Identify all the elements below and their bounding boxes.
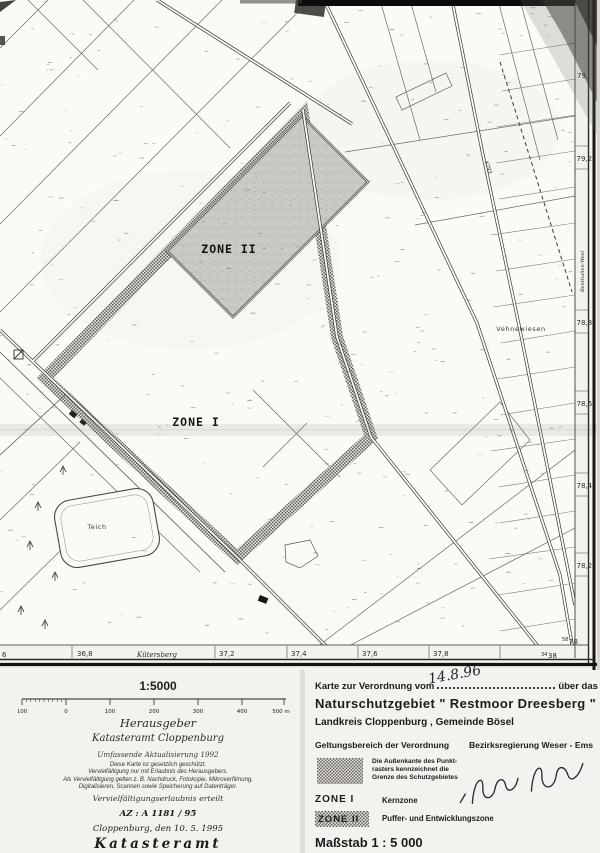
scale-title: 1:5000 [18,679,298,693]
place-date: Cloppenburg, den 10. 5. 1995 [18,824,298,834]
grid-corner-big: 78 [569,638,578,646]
grid-label: 78,6 [577,400,593,408]
signature [452,753,592,822]
grid-label: 78,2 [577,562,593,570]
authority-label: Bezirksregierung Weser - Ems [469,740,593,750]
copyright-line: Als Vervielfältigung gelten z. B. Nachdr… [18,777,298,784]
fold-crease-line [0,429,600,430]
map-legend-panel: 1:5000 100 0 100 200 300 400 500 m Herau… [0,670,600,853]
vertical-fold-crease [300,670,305,853]
protected-area-title: Naturschutzgebiet " Restmoor Dreesberg " [315,696,596,711]
zone1-desc: Kernzone [382,796,418,805]
publisher-heading: Herausgeber [18,716,298,730]
grid-label: 79,2 [577,155,593,163]
grid-corner-big: 38 [548,652,557,660]
decree-suffix: über das [558,681,598,692]
raster-note-line: rasters kennzeichnet die [372,766,458,774]
copyright-block: Diese Karte ist gesetzlich geschützt. Ve… [18,762,298,792]
zone2-key-swatch: ZONE II [315,811,369,827]
grid-label: 78,8 [577,319,593,327]
zone1-key: ZONE I [315,794,354,805]
zone2-map-label: ZONE II [201,242,256,256]
scale-tick-label: 100 [18,709,28,715]
scale-tick-label: 0 [64,709,68,715]
scale-bar: 100 0 100 200 300 400 500 m [18,694,290,716]
raster-note-line: Grenze des Schutzgebietes [372,774,458,782]
publisher-name: Katasteramt Cloppenburg [18,733,298,744]
scale-tick-label: 300 [193,709,204,715]
pond-label: Teich [86,523,106,531]
scope-row: Geltungsbereich der Verordnung Bezirksre… [315,740,593,750]
grid-label: 37,8 [433,650,449,658]
grid-label: 37,4 [291,650,307,658]
meadow-label: Vehnewiesen [496,325,545,333]
grid-label: 37,6 [362,650,378,658]
copyright-line: Digitalisieren, Scannen sowie Speicherun… [18,784,298,791]
grid-corner-small: 34 [541,652,547,658]
scale-statement: Maßstab 1 : 5 000 [315,835,423,850]
adjacent-sheet-label: Benthullen-West [580,250,586,293]
scale-tick-label: 100 [105,709,116,715]
grid-label-partial-left: 6 [2,651,7,659]
file-number: AZ : A 1181 / 95 [18,809,298,819]
grid-label: 37,2 [219,650,235,658]
office-name: Katasteramt [18,836,298,852]
raster-note-line: Die Außenkante des Punkt- [372,758,458,766]
grid-label: 36,8 [77,650,93,658]
scale-tick-label: 500 m [272,709,290,715]
copyright-line: Diese Karte ist gesetzlich geschützt. [18,762,298,769]
decree-prefix: Karte zur Verordnung vom [315,681,434,692]
zone2-desc: Puffer- und Entwicklungszone [382,814,494,823]
raster-legend-swatch [317,758,363,784]
ridge-name-label: Kütersberg [136,651,177,659]
topographic-map: ZONE II ZONE I Vehnewiesen Teich K293 79… [0,0,600,670]
protected-area-subtitle: Landkreis Cloppenburg , Gemeinde Bösel [315,717,514,728]
raster-note: Die Außenkante des Punkt- rasters kennze… [372,758,458,782]
scope-label: Geltungsbereich der Verordnung [315,740,449,750]
grid-corner-small: 58 [562,637,568,643]
zone2-key: ZONE II [318,814,359,825]
scanned-map-sheet: { "map": { "zone2_label": "ZONE II", "zo… [0,0,600,853]
update-note: Umfassende Aktualisierung 1992 [18,750,298,759]
grid-label: 78,4 [577,482,593,490]
scale-tick-label: 200 [149,709,160,715]
scale-tick-label: 400 [237,709,248,715]
permission-note: Vervielfältigungserlaubnis erteilt [18,794,298,803]
copyright-line: Vervielfältigung nur mit Erlaubnis des H… [18,769,298,776]
